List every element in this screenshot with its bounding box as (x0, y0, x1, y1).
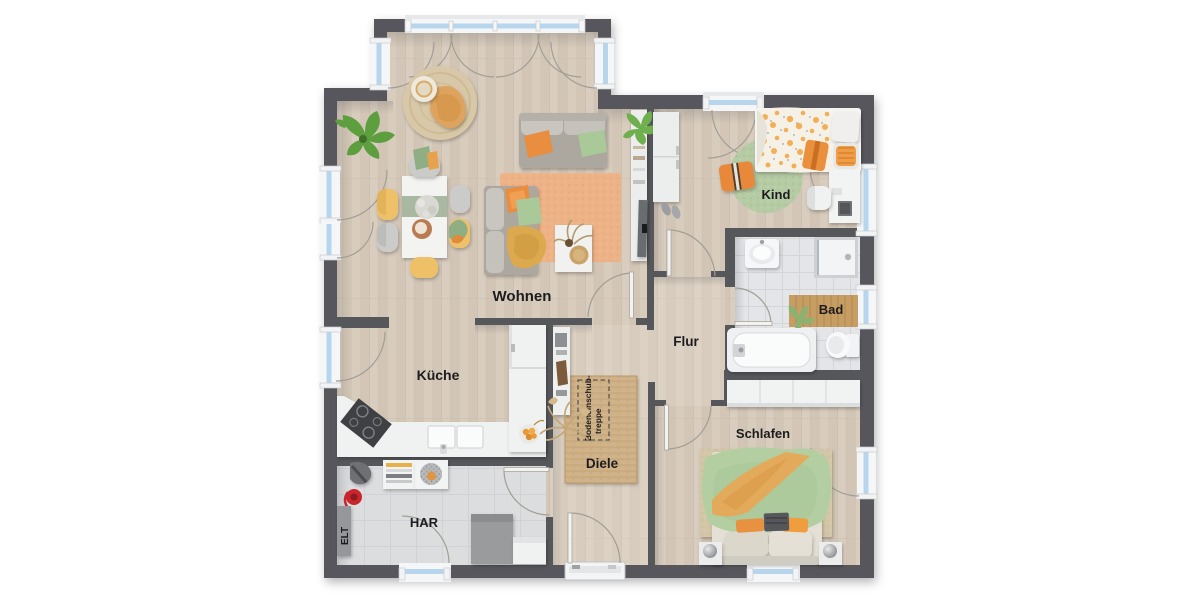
svg-text:Flur: Flur (673, 334, 699, 349)
svg-text:treppe: treppe (593, 408, 603, 434)
svg-text:Kind: Kind (762, 187, 791, 202)
svg-text:ELT: ELT (340, 527, 351, 545)
svg-text:Schlafen: Schlafen (736, 426, 790, 441)
svg-text:Bad: Bad (819, 302, 844, 317)
svg-text:Wohnen: Wohnen (493, 288, 552, 305)
svg-text:Küche: Küche (417, 367, 460, 383)
svg-text:Bodeneinschub-: Bodeneinschub- (583, 375, 593, 441)
svg-text:Diele: Diele (586, 456, 619, 471)
svg-text:HAR: HAR (410, 515, 439, 530)
